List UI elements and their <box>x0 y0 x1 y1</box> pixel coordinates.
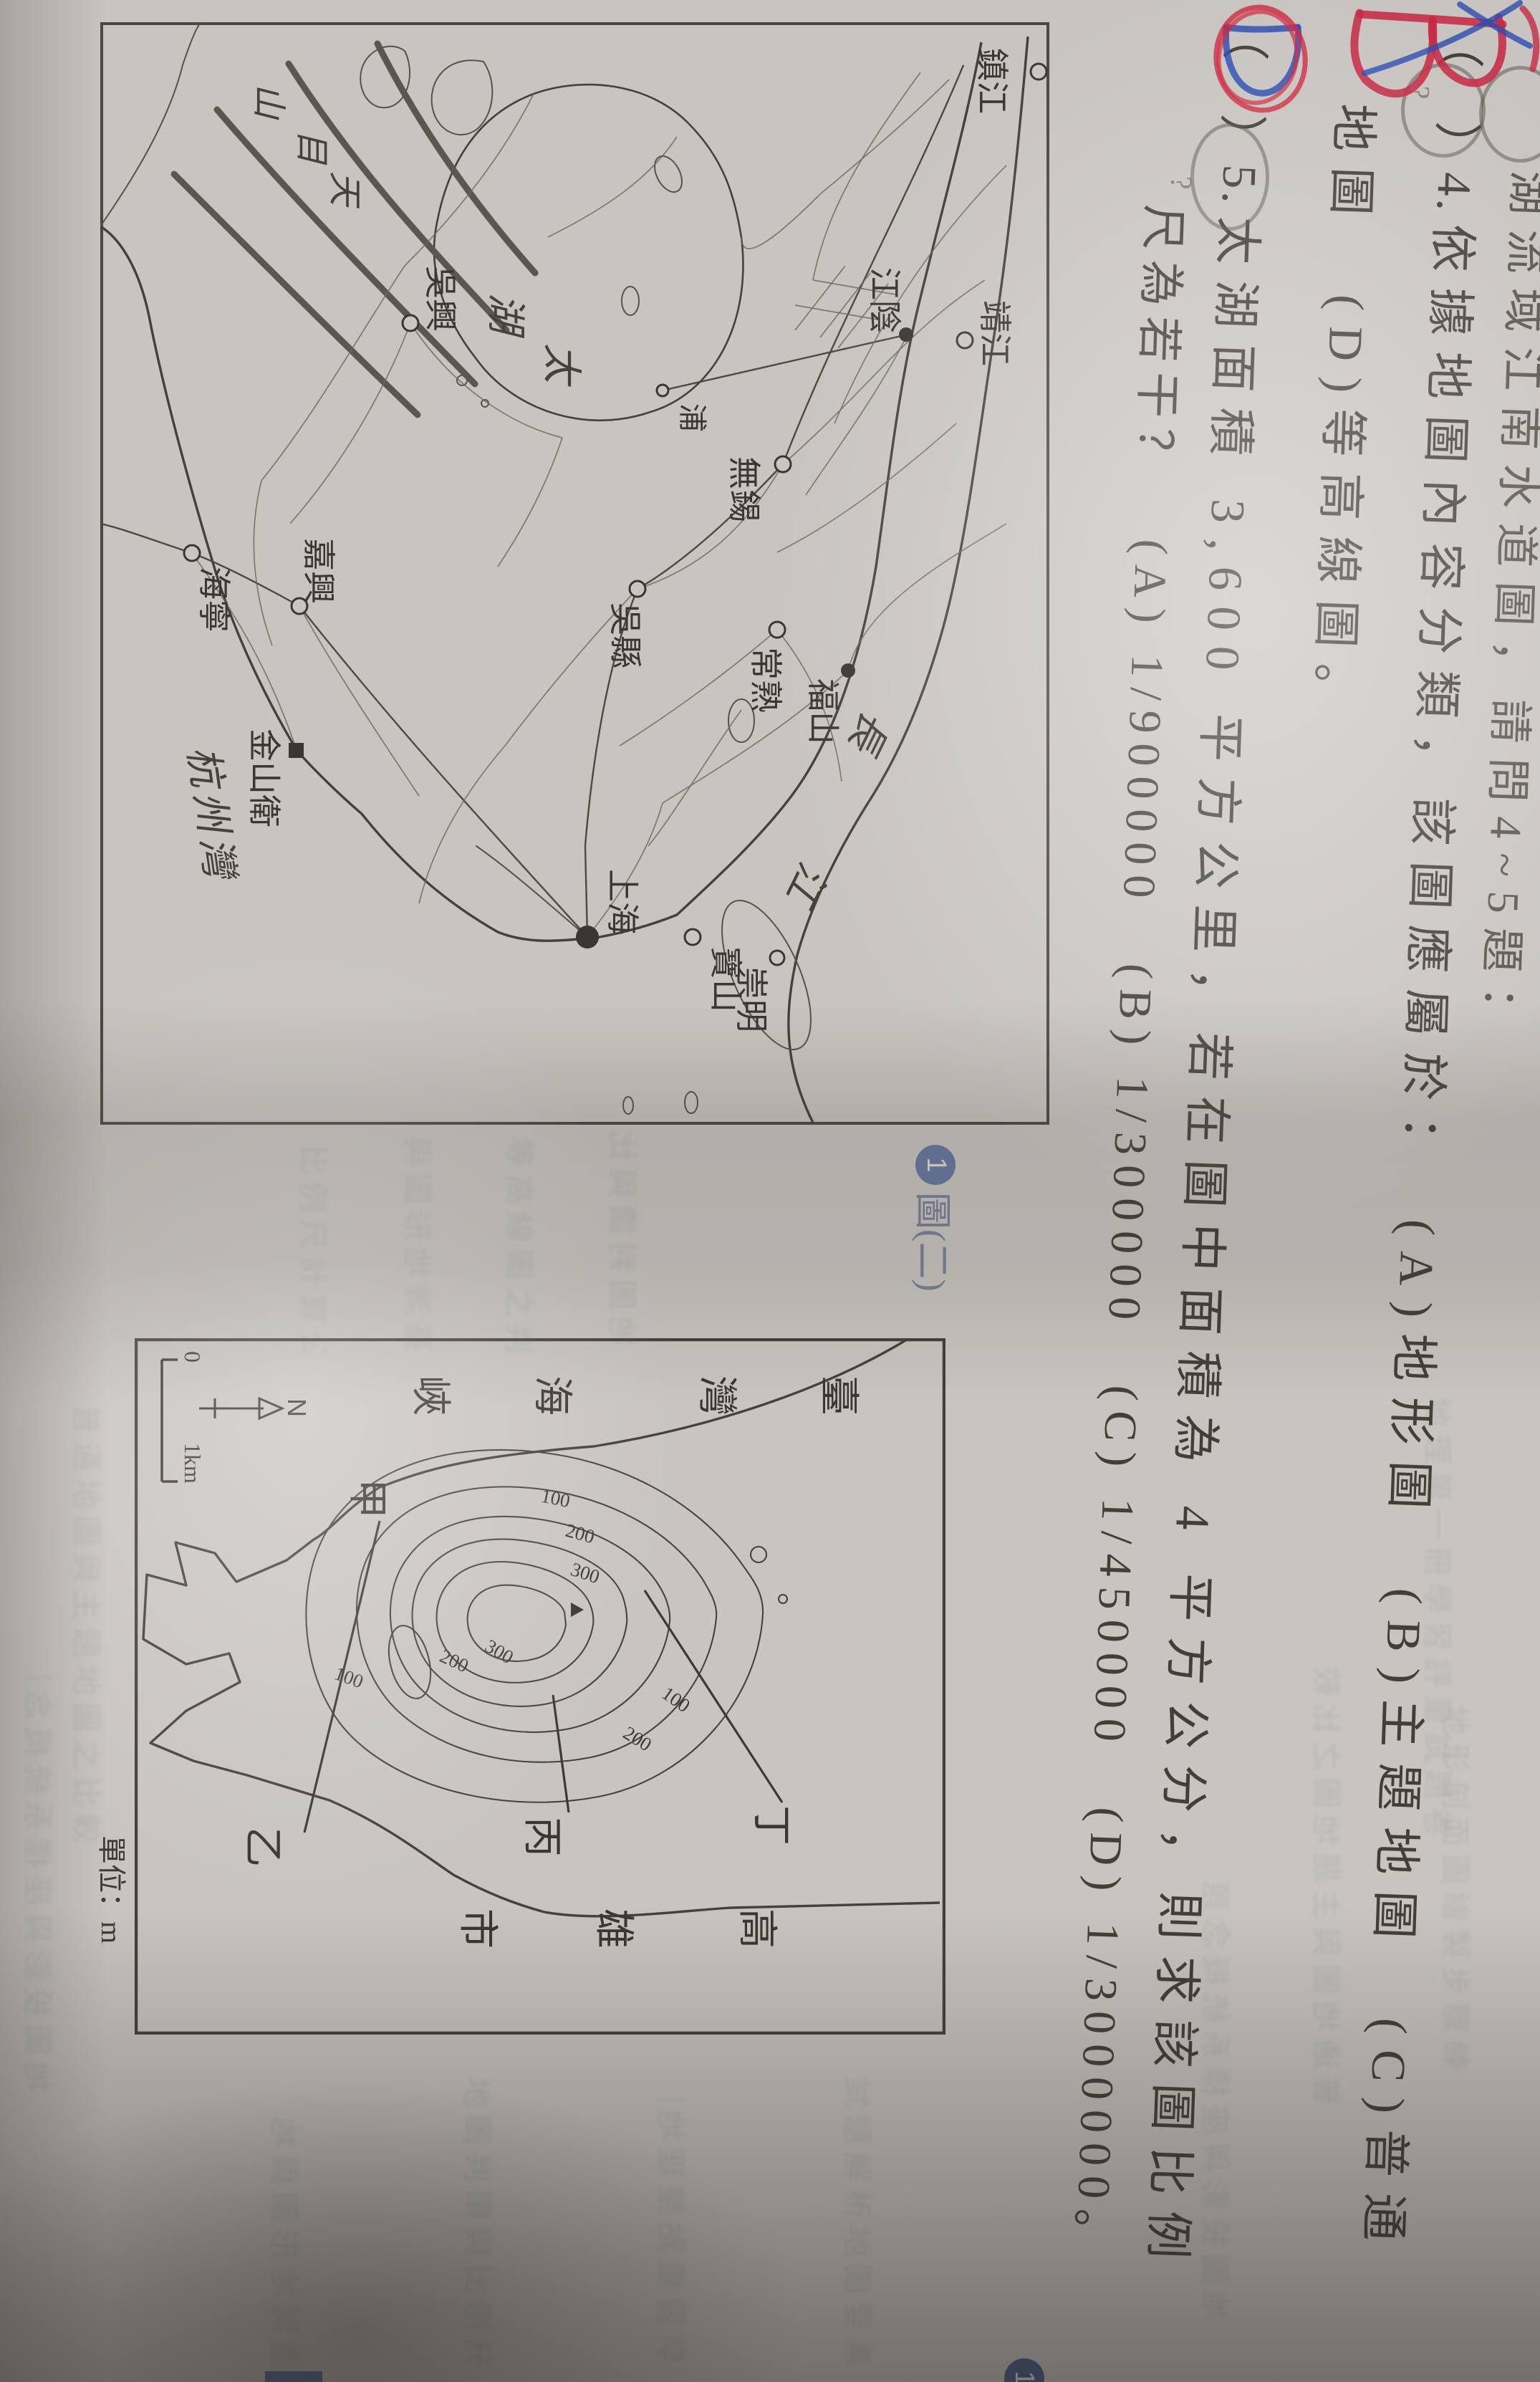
svg-text:市: 市 <box>455 1908 499 1949</box>
kaohsiung-city-label: 高 雄 市 <box>455 1908 779 1949</box>
lake-islet <box>622 287 639 315</box>
baoshan-circle <box>685 929 701 945</box>
wuxi-circle <box>775 456 791 472</box>
islet <box>685 1092 698 1113</box>
jinshanwei-square <box>289 743 304 758</box>
yangtze-north-bank <box>789 37 1028 1123</box>
taiwan-strait-label: 臺 灣 海 峽 <box>408 1375 860 1416</box>
changshu-circle <box>769 622 785 638</box>
hangzhou-bay-label: 杭州灣 <box>179 744 242 886</box>
islet <box>623 1097 633 1114</box>
svg-text:灣: 灣 <box>694 1375 738 1416</box>
taihu-label-char: 湖 <box>483 293 527 339</box>
city-label: 浦 <box>676 403 708 432</box>
city-label: 吳縣 <box>607 602 643 668</box>
haining-circle <box>184 545 200 561</box>
svg-text:海: 海 <box>529 1375 574 1416</box>
pencil-question-mark-q4: ? <box>1401 86 1435 100</box>
scale-bar <box>162 1360 178 1481</box>
bleed-through-text: 臺灣地形圖與地圖分類整理 <box>398 1130 441 1353</box>
bleed-through-text: 試題解析地圖要素方向圖例 <box>837 2078 881 2364</box>
blue-edge-mark <box>265 2371 322 2382</box>
contour-map: 100 200 300 300 200 100 100 200 甲 乙 丙 丁 … <box>135 1338 945 2035</box>
bleed-through-text: 比例尺計算公式整理與複習 <box>293 1145 337 1353</box>
jingjiang-circle <box>957 332 973 348</box>
tianmu-label-char: 山 <box>249 84 287 120</box>
svg-text:雄: 雄 <box>591 1908 635 1949</box>
point-label-bing: 丙 <box>519 1817 564 1857</box>
bleed-through-text: 地圖投影與座標系統概念題 <box>1195 1834 1239 2321</box>
tianmu-label-char: 目 <box>292 130 330 165</box>
profile-line-bing <box>553 1695 569 1812</box>
wuxian-circle <box>630 581 645 597</box>
contour-map-border <box>136 1340 944 2033</box>
bleed-through-text: 等高線圖之判讀方法說明複習 <box>499 1138 543 1353</box>
yangtze-label-char: 江 <box>776 855 835 915</box>
contour-value: 200 <box>436 1645 471 1676</box>
yangtze-label-char: 長 <box>839 704 898 762</box>
contour-knoll <box>751 1547 766 1562</box>
north-label: N <box>282 1398 312 1417</box>
bleed-through-text: 地圖判讀與比例尺換算練習 <box>602 1125 646 1347</box>
zhenjiang-circle <box>1031 64 1046 80</box>
lake-islet <box>649 152 688 197</box>
contour-value: 100 <box>539 1485 572 1512</box>
contour-ring-200 <box>390 1517 670 1732</box>
figure-badge-icon: 1 <box>916 1145 956 1185</box>
junction-circle <box>657 385 668 396</box>
bleed-through-text: 地形剖面圖繪製步驟練習題 <box>1435 1705 1479 2078</box>
contour-value: 100 <box>332 1662 366 1692</box>
city-label: 福山 <box>804 678 841 744</box>
figure-caption-text: 圖(二) <box>909 1192 963 1292</box>
tianmu-ridge-line <box>174 174 418 415</box>
contour-value: 100 <box>658 1682 694 1716</box>
pencil-question-mark-q5: ? <box>1163 176 1198 190</box>
north-arrow-icon <box>199 1398 282 1418</box>
west-lakes <box>432 60 493 135</box>
peak-triangle-icon <box>571 1603 584 1617</box>
city-label: 上海 <box>604 869 640 935</box>
bleed-through-text: 臺灣地形圖與地圖分類整理 <box>264 2113 308 2371</box>
city-label: 江陰 <box>866 267 903 333</box>
bleed-through-text: 普通地圖與主題地圖之比較 <box>1306 1547 1350 2106</box>
regional-waterway-map: 鎮江 靖江 江陰 無錫 常熟 福山 吳縣 吳興 上海 寶山 崇明 嘉興 海寧 金… <box>100 22 1049 1125</box>
bleed-through-text: 地圖判讀與比例尺換算練習 <box>458 2078 501 2364</box>
city-label: 海寧 <box>196 567 232 633</box>
point-label-ding: 丁 <box>749 1805 793 1845</box>
bleed-through-text: 普通地圖與主題地圖之比較 <box>67 1404 110 1906</box>
taihu-lake <box>434 85 743 421</box>
svg-text:高: 高 <box>734 1908 779 1949</box>
bleed-through-text: 學習重點整理地圖概念複習 <box>651 2099 695 2364</box>
city-label: 鎮江 <box>973 48 1010 114</box>
figure-caption-map2-cut: 1 <box>1004 2358 1044 2382</box>
contour-value: 200 <box>620 1722 655 1756</box>
contour-value: 200 <box>563 1519 597 1547</box>
city-label: 崇明 <box>733 966 769 1032</box>
exam-page-photo: 湖流域江南水道圖，請問4~5題： （ ）4.依據地圖內容分類，該圖應屬於： (A… <box>0 0 1540 2382</box>
pencil-circle-q4-number <box>1401 63 1486 158</box>
city-label: 靖江 <box>976 300 1013 366</box>
chongming-circle <box>770 951 784 965</box>
city-label: 無錫 <box>726 456 762 522</box>
contour-value: 300 <box>481 1635 517 1668</box>
figure-badge-icon: 1 <box>1004 2358 1044 2382</box>
huangpu-river <box>476 846 587 937</box>
map-border <box>102 24 1048 1123</box>
svg-text:臺: 臺 <box>816 1375 860 1416</box>
point-label-yi: 乙 <box>240 1827 284 1867</box>
bleed-through-text: 地圖投影與座標系統概念題 <box>18 1676 62 2092</box>
city-markers <box>184 64 1046 965</box>
pencil-circle-q5-number <box>1190 123 1269 231</box>
taihu-label-char: 太 <box>539 343 583 387</box>
city-label: 常熟 <box>747 647 784 713</box>
tianmu-label-char: 天 <box>325 171 363 209</box>
svg-text:峽: 峽 <box>408 1375 452 1416</box>
city-label: 吳興 <box>422 266 458 332</box>
figure-caption-map1: 1 圖(二) <box>909 1145 963 1292</box>
city-label: 金山衛 <box>246 729 282 827</box>
fushan-dot <box>841 663 855 678</box>
wuxing-circle <box>403 315 418 331</box>
contour-ring-150 <box>357 1487 716 1762</box>
city-label: 嘉興 <box>300 538 337 604</box>
tianmu-ridge-line <box>377 44 535 273</box>
qiantang-river <box>100 24 200 226</box>
contour-knob <box>382 1621 438 1703</box>
shanghai-dot <box>576 926 599 949</box>
railway-jinghu-line <box>585 65 963 937</box>
point-label-jia: 甲 <box>345 1479 389 1519</box>
scale-km-label: 1km <box>180 1443 206 1484</box>
rotated-exam-page: 湖流域江南水道圖，請問4~5題： （ ）4.依據地圖內容分類，該圖應屬於： (A… <box>0 0 1540 2382</box>
scale-zero-label: 0 <box>180 1351 206 1363</box>
contour-knoll <box>779 1595 787 1603</box>
question-4-line-2: 地圖 (D)等高線圖。 <box>1301 102 1392 729</box>
